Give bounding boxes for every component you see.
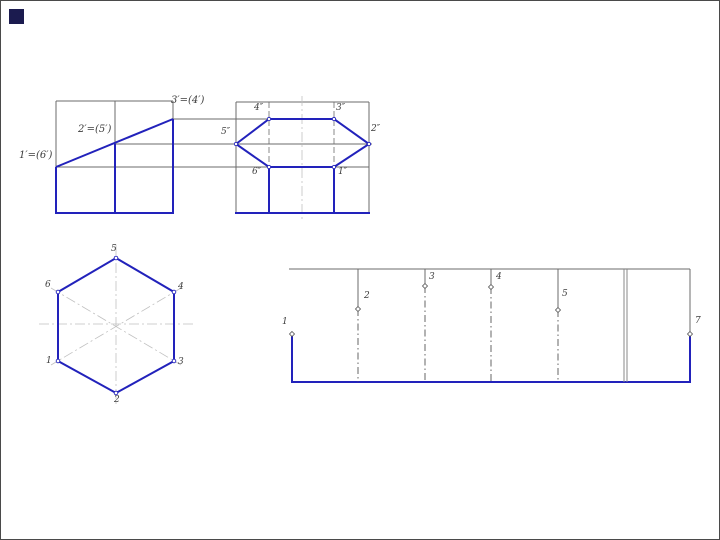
hexagon-label-5: 5 [111,245,117,254]
development-label-7: 7 [695,317,701,326]
front-view [55,101,372,214]
profile-label-6: 6″ [252,168,261,177]
hexagon-label-1: 1 [46,357,52,366]
hexagon-true-shape [39,245,193,404]
hexagon-label-4: 4 [178,283,184,292]
development-label-3: 3 [429,273,435,282]
slide-canvas: 1′=(6′) 2′=(5′) 3′=(4′) 5″ 4″ 3″ 2″ 6″ 1… [0,0,720,540]
technical-drawing [1,1,720,540]
development-label-1: 1 [282,318,288,327]
front-label-2-5: 2′=(5′) [78,125,111,135]
hexagon-label-6: 6 [45,281,51,290]
development-label-4: 4 [496,273,502,282]
profile-label-1: 1″ [338,168,347,177]
development [289,269,693,382]
profile-label-5: 5″ [221,128,230,137]
development-label-5: 5 [562,290,568,299]
development-label-2: 2 [364,292,370,301]
front-label-3-4: 3′=(4′) [171,96,204,106]
profile-label-4: 4″ [254,104,263,113]
hexagon-label-3: 3 [178,358,184,367]
hexagon-label-2: 2 [114,396,120,405]
profile-view [234,96,370,220]
front-label-1-6: 1′=(6′) [19,151,52,161]
profile-label-2: 2″ [371,125,380,134]
profile-label-3: 3″ [336,104,345,113]
